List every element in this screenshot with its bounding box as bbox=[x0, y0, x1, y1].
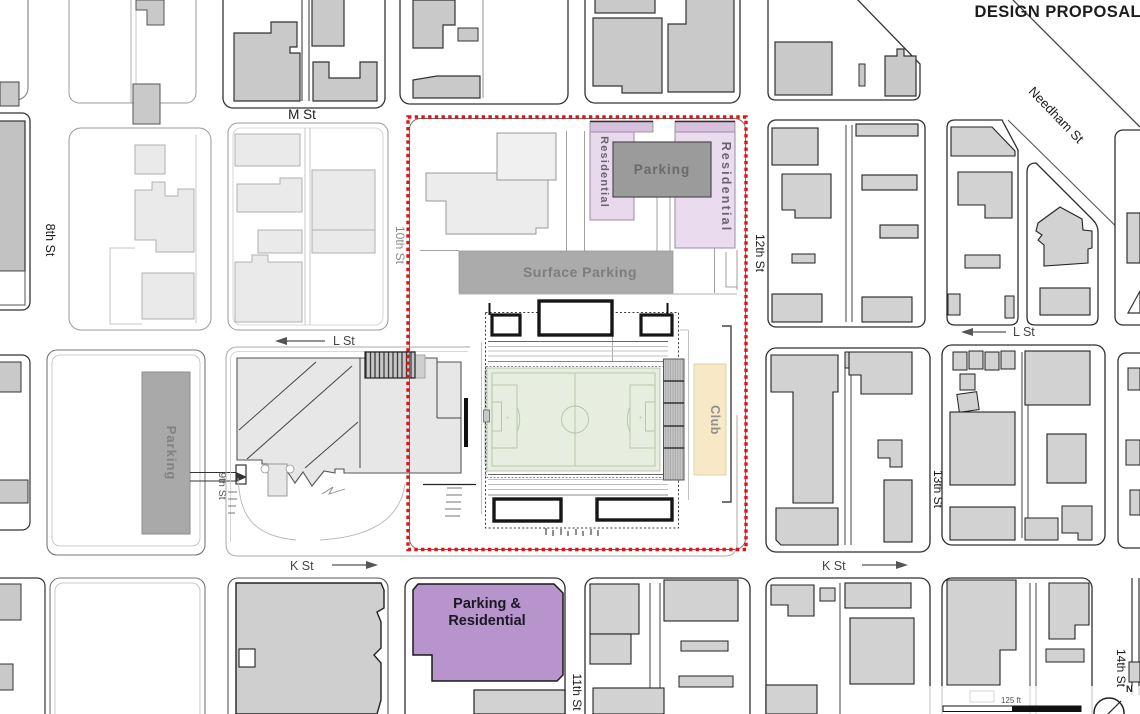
svg-text:L St: L St bbox=[1013, 325, 1035, 339]
svg-text:Residential: Residential bbox=[598, 136, 610, 208]
svg-text:8th St: 8th St bbox=[43, 224, 57, 257]
svg-text:Club: Club bbox=[708, 405, 722, 435]
svg-text:Parking: Parking bbox=[164, 426, 179, 481]
svg-text:10th St: 10th St bbox=[393, 226, 407, 265]
svg-text:12th St: 12th St bbox=[753, 234, 767, 273]
svg-text:Parking &: Parking & bbox=[453, 596, 521, 612]
svg-text:M St: M St bbox=[288, 107, 316, 122]
svg-text:K St: K St bbox=[290, 559, 314, 573]
svg-text:Residential: Residential bbox=[448, 613, 525, 629]
svg-text:11th St: 11th St bbox=[570, 673, 584, 711]
svg-text:L St: L St bbox=[333, 334, 355, 348]
svg-text:Residential: Residential bbox=[719, 142, 733, 233]
svg-text:125 ft: 125 ft bbox=[1001, 696, 1022, 705]
svg-text:Surface Parking: Surface Parking bbox=[523, 264, 637, 280]
svg-text:Parking: Parking bbox=[634, 162, 691, 177]
svg-text:DESIGN PROPOSAL: DESIGN PROPOSAL bbox=[975, 3, 1140, 21]
svg-text:14th St: 14th St bbox=[1114, 649, 1128, 688]
svg-text:K St: K St bbox=[822, 559, 846, 573]
